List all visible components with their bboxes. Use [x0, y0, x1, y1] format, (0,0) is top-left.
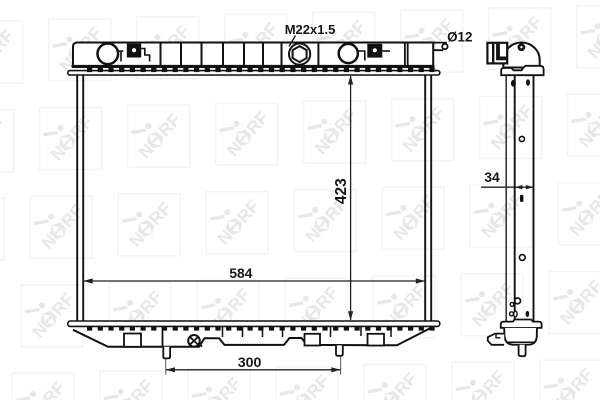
svg-text:Ø12: Ø12 [447, 30, 472, 45]
svg-text:M22x1.5: M22x1.5 [285, 22, 336, 37]
svg-text:423: 423 [333, 178, 350, 204]
svg-text:584: 584 [229, 266, 252, 281]
svg-text:34: 34 [484, 170, 500, 185]
svg-text:300: 300 [238, 355, 262, 371]
